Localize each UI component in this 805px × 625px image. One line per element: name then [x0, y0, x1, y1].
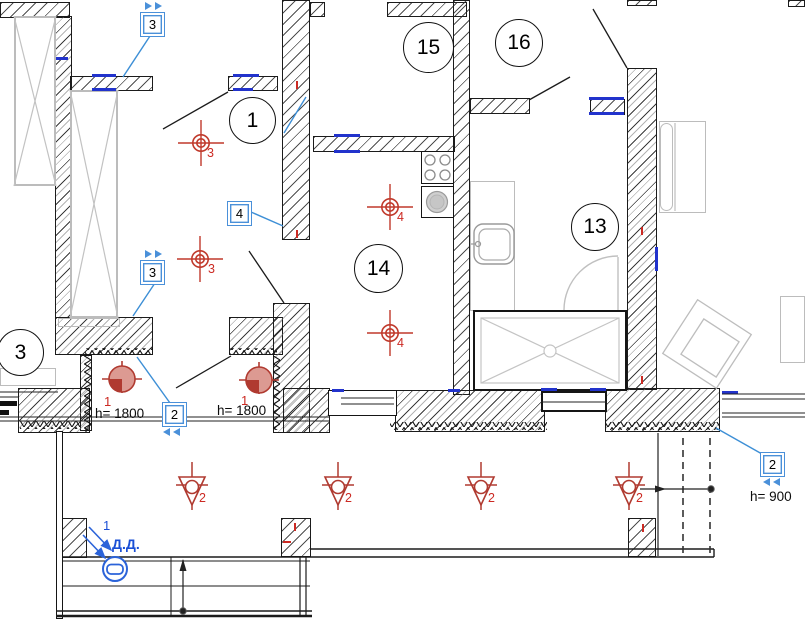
balcony-glazing — [56, 549, 714, 617]
room-number: 14 — [367, 257, 390, 281]
mounting-height-label: h= 1800 — [95, 407, 144, 421]
callout-arrow-icon — [173, 428, 180, 436]
room-number: 16 — [507, 31, 530, 55]
spot-light-symbols — [176, 462, 645, 510]
fixture-label: 3 — [207, 147, 214, 160]
fixture-label: 2 — [636, 492, 643, 505]
stove-burners — [425, 155, 450, 180]
floor-plan: 1 3 13 14 15 16 3 4 3 2 2 3 3 4 4 1 h= 1… — [0, 0, 805, 625]
fixture-label: 4 — [397, 337, 404, 350]
callout-number: 4 — [236, 206, 243, 221]
kitchen-sink — [427, 192, 448, 213]
room-number-circle: 14 — [354, 244, 403, 293]
wall-light-symbols — [102, 361, 279, 394]
callout-number: 3 — [149, 265, 156, 280]
fixture-label: 2 — [488, 492, 495, 505]
detector-number: 1 — [103, 519, 110, 532]
room-number-circle: 16 — [495, 19, 543, 67]
callout-number: 3 — [149, 17, 156, 32]
ceiling-light-symbol — [178, 120, 224, 166]
fixture-label: 2 — [199, 492, 206, 505]
mounting-height-label: h= 900 — [750, 490, 792, 504]
ceiling-light-symbol — [367, 310, 413, 356]
callout-arrow-icon — [145, 2, 152, 10]
callout-box: 2 — [162, 402, 187, 427]
ceiling-light-symbol — [177, 236, 223, 282]
callout-arrow-icon — [155, 250, 162, 258]
callout-box: 3 — [140, 260, 165, 285]
balcony-lines — [180, 433, 715, 614]
rotated-furniture — [663, 300, 752, 389]
callout-number: 2 — [769, 457, 776, 472]
wall-light-symbol — [102, 361, 142, 393]
room-number-circle: 1 — [229, 97, 276, 144]
callout-number: 2 — [171, 407, 178, 422]
callout-arrow-icon — [163, 428, 170, 436]
detector-name: Д.Д. — [112, 537, 140, 551]
fixture-label: 3 — [208, 263, 215, 276]
ceiling-light-symbol — [367, 184, 413, 230]
room-number: 15 — [417, 36, 440, 60]
room-number: 1 — [247, 109, 259, 133]
callout-box: 2 — [760, 452, 785, 477]
bathtub-interior — [481, 318, 619, 383]
callout-box: 3 — [140, 12, 165, 37]
callout-arrow-icon — [773, 478, 780, 486]
callout-arrow-icon — [155, 2, 162, 10]
room-number: 13 — [583, 215, 606, 239]
fixture-label: 4 — [397, 211, 404, 224]
bathroom-door — [564, 256, 618, 310]
room-number: 3 — [15, 341, 27, 365]
callout-leader-lines — [123, 36, 762, 454]
plan-linework — [0, 0, 805, 625]
door-swing-lines — [163, 9, 627, 388]
room-number-circle: 13 — [571, 203, 619, 251]
mounting-height-label: h= 1800 — [217, 404, 266, 418]
callout-box: 4 — [227, 201, 252, 226]
callout-arrow-icon — [763, 478, 770, 486]
room-number-circle: 15 — [403, 22, 454, 73]
callout-arrow-icon — [145, 250, 152, 258]
wardrobe-cross-lines — [14, 16, 118, 318]
fixture-label: 2 — [345, 492, 352, 505]
washbasin — [471, 224, 514, 264]
